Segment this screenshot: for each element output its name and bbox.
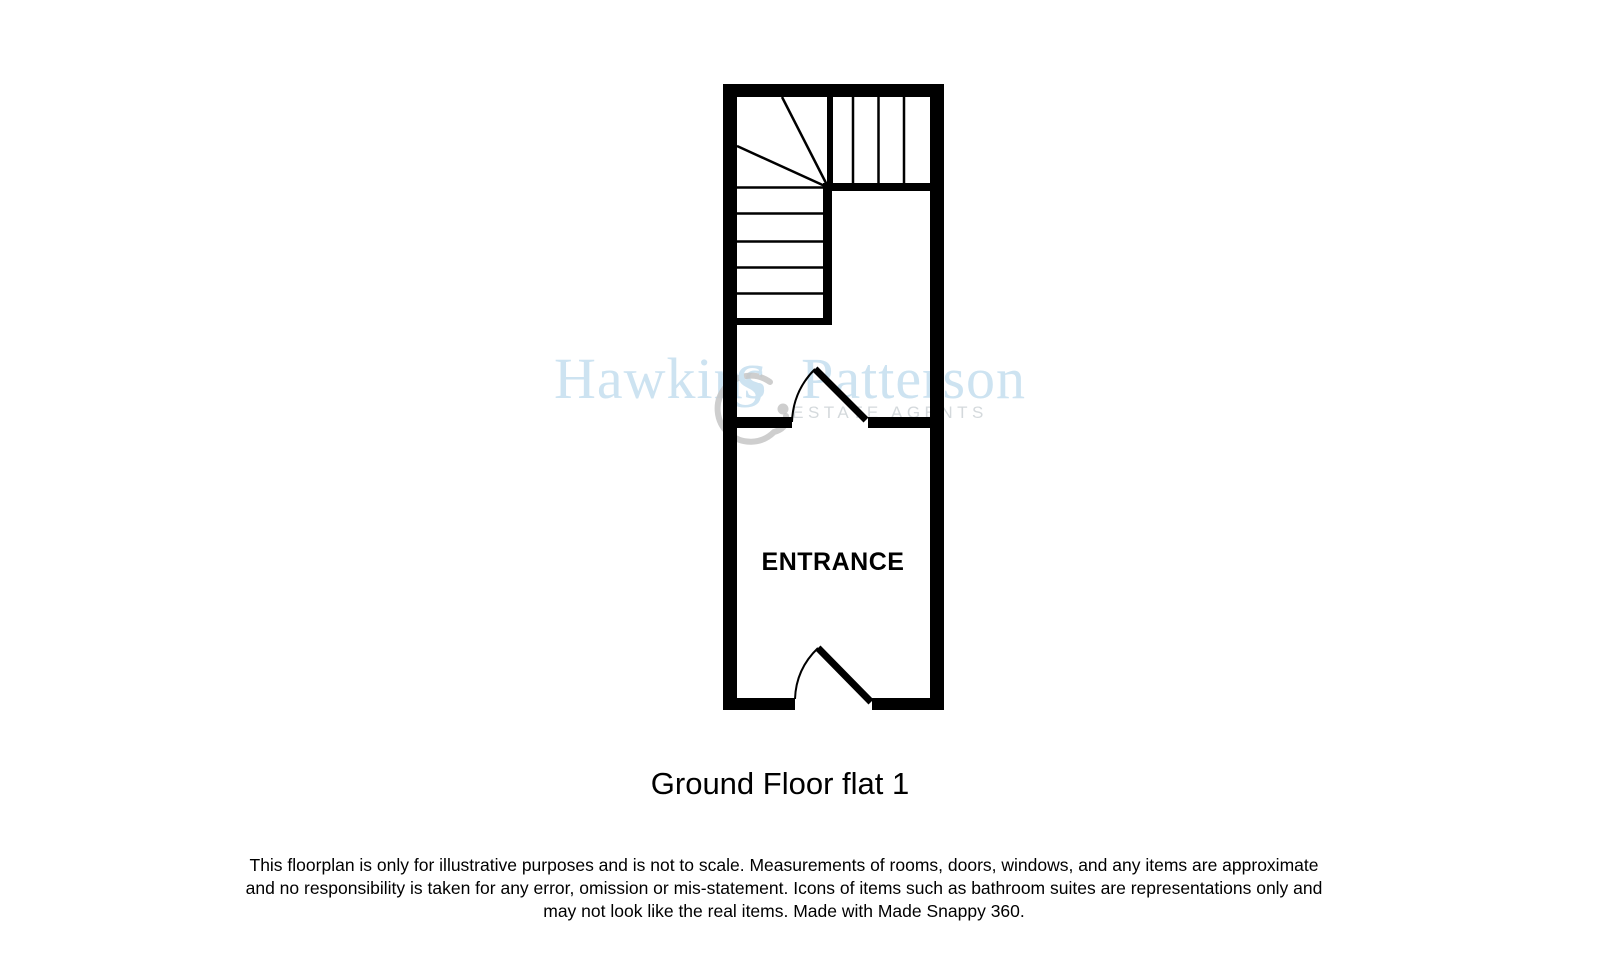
wall-stair-side <box>823 183 832 325</box>
stair-winder-tread <box>782 97 827 185</box>
stair-winder-tread <box>737 146 827 187</box>
wall-bottom-left <box>723 698 795 710</box>
door-leaf <box>815 369 866 420</box>
door-interior <box>792 369 866 422</box>
floorplan-drawing: ENTRANCE <box>0 0 1600 978</box>
disclaimer: This floorplan is only for illustrative … <box>184 854 1384 923</box>
disclaimer-line-3: may not look like the real items. Made w… <box>184 900 1384 923</box>
floorplan-page: HawkinsPatterson ESTATE AGENTS S <box>0 0 1600 978</box>
wall-bottom-right <box>872 698 944 710</box>
wall-middle-left <box>737 417 792 428</box>
wall-left <box>723 84 737 710</box>
door-swing-arc <box>792 369 815 422</box>
door-entrance <box>795 648 871 702</box>
staircase <box>737 97 904 294</box>
entrance-room-label: ENTRANCE <box>762 548 905 576</box>
wall-stair-landing <box>823 183 930 191</box>
wall-top <box>723 84 944 97</box>
door-swing-arc <box>795 648 818 699</box>
stair-winder-divider <box>827 97 833 187</box>
disclaimer-line-2: and no responsibility is taken for any e… <box>184 877 1384 900</box>
disclaimer-line-1: This floorplan is only for illustrative … <box>184 854 1384 877</box>
wall-right <box>930 84 944 710</box>
floor-title: Ground Floor flat 1 <box>651 766 909 802</box>
door-leaf <box>818 648 871 702</box>
wall-stair-base <box>737 318 832 325</box>
wall-middle-right <box>868 417 930 428</box>
walls <box>723 84 944 710</box>
